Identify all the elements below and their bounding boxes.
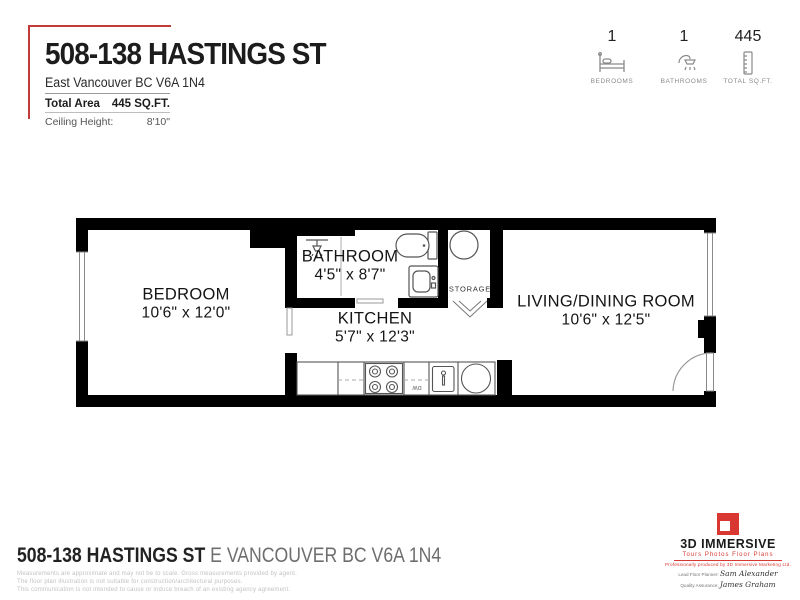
- divider: [674, 560, 782, 561]
- bathroom-sink-icon: [409, 266, 438, 297]
- footer-address-street: 508-138 HASTINGS ST: [17, 544, 205, 567]
- room-label-bathroom: BATHROOM 4'5" x 8'7": [302, 248, 399, 285]
- storage-door-icon: [453, 301, 487, 317]
- company-tagline: Tours Photos Floor Plans: [660, 552, 796, 558]
- footer-address-city: E VANCOUVER BC V6A 1N4: [210, 544, 441, 567]
- round-sink-icon: [462, 364, 491, 393]
- quality-assurance-label: Quality Assurance:: [680, 583, 718, 588]
- quality-assurance-signature: James Graham: [720, 580, 776, 589]
- toilet-icon: [396, 232, 437, 259]
- floorplan-page: 508-138 HASTINGS ST East Vancouver BC V6…: [0, 0, 800, 600]
- entry-door-icon: [673, 353, 716, 391]
- stove-icon: [366, 364, 403, 394]
- disclaimer-line: The floor plan illustration is not suita…: [17, 579, 243, 585]
- lead-planner-row: Lead Floor Planner: Sam Alexander: [660, 569, 796, 578]
- lead-planner-label: Lead Floor Planner:: [678, 572, 718, 577]
- disclaimer-line: This communication is not intended to ca…: [17, 587, 290, 593]
- livingroom-window-icon: [704, 233, 716, 316]
- bathroom-door-icon: [357, 299, 383, 303]
- bedroom-door-icon: [287, 308, 292, 335]
- kitchen-sink-icon: [433, 367, 455, 392]
- room-label-living-dining: LIVING/DINING ROOM 10'6" x 12'5": [517, 293, 695, 330]
- room-label-bedroom: BEDROOM 10'6" x 12'0": [142, 286, 231, 323]
- disclaimer-line: Measurements are approximate and may not…: [17, 571, 297, 577]
- water-tank-icon: [450, 231, 478, 259]
- produced-by-text: Professionally produced by 3D Immersive …: [660, 562, 796, 567]
- company-logo-block: 3D IMMERSIVE Tours Photos Floor Plans Pr…: [660, 513, 796, 589]
- room-label-kitchen: KITCHEN 5'7" x 12'3": [335, 310, 415, 347]
- quality-assurance-row: Quality Assurance: James Graham: [660, 580, 796, 589]
- company-name: 3D IMMERSIVE: [660, 537, 796, 551]
- footer-address: 508-138 HASTINGS ST E VANCOUVER BC V6A 1…: [17, 544, 441, 568]
- bedroom-window-icon: [76, 252, 88, 341]
- room-label-storage: STORAGE: [449, 285, 491, 294]
- dishwasher-label: DW: [412, 384, 421, 390]
- 3d-immersive-logo-icon: [717, 513, 739, 535]
- lead-planner-signature: Sam Alexander: [720, 569, 778, 578]
